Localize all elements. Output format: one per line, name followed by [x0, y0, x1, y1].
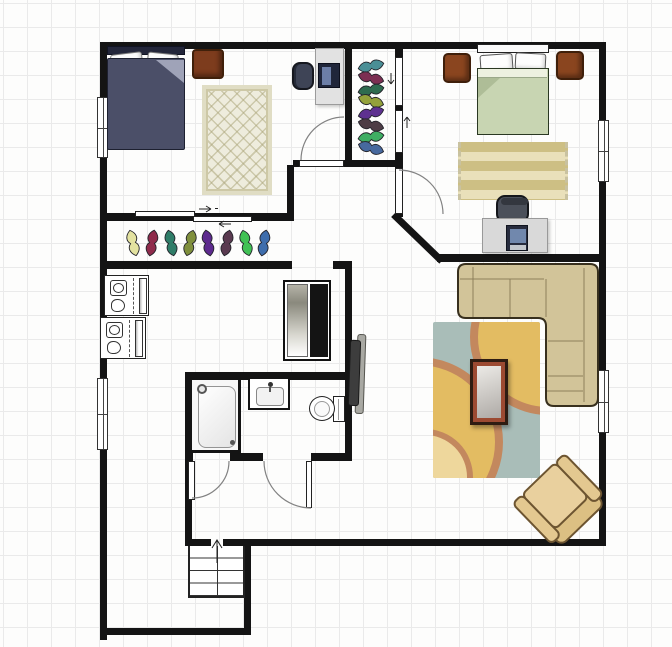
sink: [248, 377, 290, 410]
washer-box-b: [100, 317, 146, 359]
sliding-door-bedroom1-a: [135, 211, 195, 217]
rug-bed1: [202, 85, 272, 195]
bed2-headboard: [477, 44, 549, 53]
shower-tub: [198, 386, 236, 448]
washer-a-door-dash: [133, 278, 134, 314]
toilet-bowl: [309, 396, 335, 421]
washer-b-clothes-icon: [107, 341, 121, 354]
laptop-keyboard: [510, 245, 526, 250]
washer-a-side-panel: [139, 278, 147, 314]
toilet-tank-line: [338, 399, 339, 420]
coffee-table-glass: [477, 366, 501, 418]
washer-box-a: [104, 275, 149, 316]
monitor-bed1: [318, 63, 340, 88]
laptop-screen: [510, 229, 526, 243]
shower-head: [197, 384, 207, 394]
window-laundry-left: [97, 378, 108, 450]
shower-drain: [230, 440, 235, 445]
bed2-blanket: [477, 68, 549, 135]
washer-a-clothes-icon: [111, 299, 125, 312]
laptop-bed2: [506, 225, 528, 251]
pocket-door-closet-b: [395, 110, 403, 153]
floor-plan-canvas: [0, 0, 672, 647]
door-leaf-bedroom2: [395, 168, 403, 214]
rug-bed2: [458, 142, 568, 200]
washer-b-door-dash: [129, 320, 130, 357]
nightstand-right: [556, 51, 584, 80]
stairs-mid-line: [217, 546, 218, 596]
washer-b-drum-circle-icon: [109, 325, 120, 335]
bed2-turndown: [478, 69, 547, 78]
sliding-door-bedroom1-b: [193, 216, 252, 222]
pocket-door-closet-a: [395, 57, 403, 106]
shower: [189, 377, 241, 453]
window-bedroom2-right: [598, 120, 609, 182]
bed1-fold: [156, 60, 184, 83]
door-leaf-bedroom1: [299, 160, 344, 167]
toilet-seat: [314, 401, 330, 417]
tv-front: [348, 340, 361, 406]
chair-bed2-back: [501, 198, 528, 205]
dresser-bed1: [192, 49, 224, 79]
monitor-screen-bed1: [322, 67, 331, 85]
window-living-right: [598, 370, 609, 433]
coffee-table: [470, 359, 508, 425]
nightstand-left: [443, 53, 471, 83]
sink-stem: [269, 387, 271, 392]
wardrobe-mirror: [287, 284, 308, 357]
wardrobe-dark: [310, 284, 328, 357]
door-leaf-bath-left: [188, 461, 195, 500]
stairs: [188, 546, 245, 598]
washer-a-drum-circle-icon: [113, 283, 124, 293]
wardrobe: [283, 280, 331, 361]
bed2-fold: [478, 78, 500, 98]
bed1-blanket: [107, 58, 185, 150]
chair-bed1: [292, 62, 314, 90]
door-leaf-bath-right: [306, 461, 312, 508]
washer-b-side-panel: [135, 320, 143, 357]
